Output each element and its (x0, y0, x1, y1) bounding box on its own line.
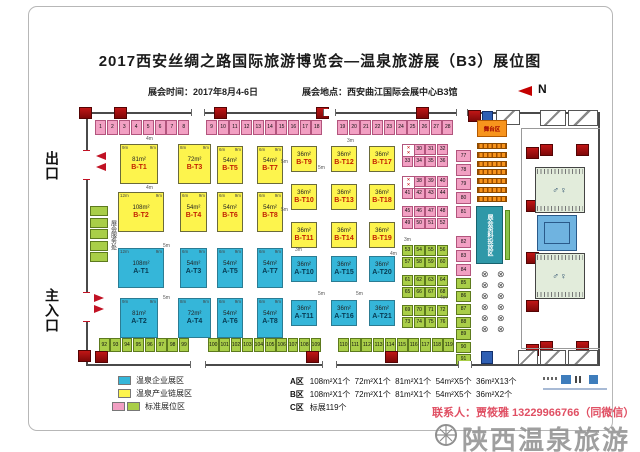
aisle-dimension-label: 5m (281, 160, 288, 165)
standard-booth-79: 79 (456, 178, 471, 190)
standard-booth-72: 72 (437, 305, 448, 316)
blurred-underline (543, 388, 607, 390)
standard-booth-96: 96 (145, 338, 156, 352)
booth-name: A-T16 (334, 313, 353, 320)
service-desk-cell (90, 218, 108, 228)
contact-info: 联系人：贾筱雅 13229966766（同微信） (432, 404, 634, 420)
booth-name: B-T18 (372, 197, 391, 204)
bottom-door (458, 361, 472, 368)
standard-booth-116: 116 (408, 338, 419, 352)
booth-B-T10: 36m²B-T10 (291, 184, 317, 210)
booth-area: 36m² (297, 152, 311, 158)
booth-name: A-T20 (372, 269, 391, 276)
stair-room (537, 215, 577, 251)
pillar (526, 300, 539, 312)
pillar (576, 144, 589, 156)
round-table-icon: ⊗ (481, 303, 489, 312)
standard-booth-111: 111 (350, 338, 361, 352)
round-table-icon: ⊗ (481, 314, 489, 323)
standard-booth-83: 83 (456, 250, 471, 262)
zone-c-label: C区 (290, 403, 304, 412)
blurred-blue-square (561, 375, 571, 384)
zone-a-stats: A区108m²X1个 72m²X1个 81m²X1个 54m²X5个 36m²X… (290, 376, 517, 387)
aisle-dimension-label: 5m (163, 244, 170, 249)
pillar (79, 107, 92, 119)
booth-depth-dim: 9m (150, 300, 156, 305)
standard-booth-98: 98 (167, 338, 178, 352)
standard-booth-53: 53 (402, 245, 413, 256)
standard-booth-57: 57 (402, 257, 413, 268)
booth-B-T1: 9m9m81m²B-T1 (120, 144, 158, 184)
blurred-blue-square (589, 375, 598, 384)
booth-depth-dim: 9m (203, 146, 209, 151)
standard-booth-13: 13 (253, 120, 264, 135)
aisle-dimension-label: 4m (440, 296, 447, 301)
standard-booth-61: 61 (402, 275, 413, 286)
booth-A-T8: 6m9m54m²A-T8 (257, 298, 283, 338)
booth-depth-dim: 9m (150, 146, 156, 151)
booth-name: A-T3 (186, 268, 202, 275)
legend-label: 标准展位区 (145, 401, 185, 412)
standard-booth-25: 25 (407, 120, 418, 135)
booth-B-T6: 6m9m54m²B-T6 (217, 192, 243, 232)
booth-area: 36m² (337, 306, 351, 312)
booth-B-T9: 36m²B-T9 (291, 146, 317, 172)
entrance-arrow-icon (94, 294, 104, 302)
side-room (568, 350, 598, 365)
stall-hatch (537, 255, 583, 260)
legend-item-hotspring-industry: 温泉产业链展区 (118, 388, 192, 399)
green-strip (505, 210, 510, 260)
booth-name: A-T7 (262, 268, 278, 275)
booth-area: 36m² (375, 152, 389, 158)
standard-booth-39: 39 (425, 176, 436, 187)
booth-name: B-T17 (372, 159, 391, 166)
standard-booth-19: 19 (337, 120, 348, 135)
booth-area: 54m² (223, 205, 237, 211)
entrance-arrow-icon (94, 305, 104, 313)
standard-booth-114: 114 (385, 338, 396, 352)
standard-booth-26: 26 (419, 120, 430, 135)
standard-booth-85: 85 (456, 278, 471, 289)
standard-booth-93: 93 (110, 338, 121, 352)
standard-booth-28: 28 (442, 120, 453, 135)
standard-booth-9: 9 (206, 120, 217, 135)
standard-booth-14: 14 (265, 120, 276, 135)
standard-booth-6: 6 (155, 120, 166, 135)
booth-area: 54m² (223, 311, 237, 317)
aisle-dimension-label: 4m (390, 252, 397, 257)
booth-area: 36m² (375, 228, 389, 234)
booth-B-T12: 36m²B-T12 (331, 146, 357, 172)
pillar (416, 107, 429, 119)
booth-B-T3: 8m9m72m²B-T3 (178, 144, 211, 184)
booth-depth-dim: 9m (235, 194, 241, 199)
booth-A-T11: 36m²A-T11 (291, 300, 317, 326)
standard-booth-66: 66 (414, 287, 425, 298)
booth-width-dim: 12m (120, 194, 129, 199)
booth-area: 54m² (187, 205, 201, 211)
booth-depth-dim: 9m (235, 300, 241, 305)
standard-booth-31: 31 (425, 144, 436, 155)
standard-booth-54: 54 (414, 245, 425, 256)
standard-booth-77: 77 (456, 150, 471, 162)
booth-depth-dim: 9m (235, 250, 241, 255)
standard-booth-100: 100 (208, 338, 219, 352)
booth-name: B-T1 (131, 164, 147, 171)
round-table-icon: ⊗ (497, 292, 505, 301)
pillar (114, 107, 127, 119)
bottom-door (322, 361, 337, 368)
side-room (568, 110, 598, 126)
standard-booth-110: 110 (338, 338, 349, 352)
standard-booth-32: 32 (437, 144, 448, 155)
audience-seat-row (477, 178, 507, 184)
booth-area: 54m² (223, 158, 237, 164)
standard-booth-7: 7 (166, 120, 177, 135)
watermark-text: 陕西温泉旅游 (462, 420, 630, 452)
aisle-dimension-label: 3m (404, 238, 411, 243)
standard-booth-44: 44 (437, 188, 448, 199)
booth-width-dim: 6m (259, 194, 265, 199)
standard-booth-11: 11 (229, 120, 240, 135)
standard-booth-73: 73 (402, 317, 413, 328)
booth-name: A-T1 (133, 268, 149, 275)
zone-b-label: B区 (290, 390, 304, 399)
booth-width-dim: 6m (182, 194, 188, 199)
booth-area: 108m² (132, 205, 149, 211)
standard-booth-41: 41 (402, 188, 413, 199)
standard-booth-4: 4 (131, 120, 142, 135)
booth-name: A-T6 (222, 318, 238, 325)
legend-item-standard-booth: 标准展位区 (112, 401, 185, 412)
standard-booth-109: 109 (311, 338, 322, 352)
booth-name: A-T4 (187, 318, 203, 325)
aisle-dimension-label: 5m (318, 292, 325, 297)
info-material-zone-label: 展会资料投放区 (477, 207, 502, 263)
booth-area: 54m² (223, 261, 237, 267)
screenshot-root: 2017西安丝绸之路国际旅游博览会—温泉旅游展（B3）展位图 展会时间：2017… (0, 0, 640, 452)
standard-booth-30: 30 (414, 144, 425, 155)
booth-name: B-T12 (334, 159, 353, 166)
booth-area: 36m² (375, 262, 389, 268)
zone-a-label: A区 (290, 377, 304, 386)
booth-width-dim: 8m (180, 146, 186, 151)
booth-name: B-T2 (133, 212, 149, 219)
watermark-logo-icon (434, 423, 458, 447)
standard-booth-49: 49 (402, 218, 413, 229)
booth-width-dim: 6m (259, 250, 265, 255)
booth-A-T4: 8m9m72m²A-T4 (178, 298, 211, 338)
restroom-block: ♂♀ (535, 253, 585, 299)
booth-width-dim: 6m (219, 148, 225, 153)
standard-booth-23: 23 (384, 120, 395, 135)
booth-A-T2: 9m9m81m²A-T2 (120, 298, 158, 338)
booth-B-T14: 36m²B-T14 (331, 222, 357, 248)
booth-B-T11: 36m²B-T11 (291, 222, 317, 248)
utility-box (481, 351, 493, 364)
standard-booth-88: 88 (456, 317, 471, 328)
corridor-wall (521, 128, 522, 349)
zone-b-stats: B区108m²X1个 72m²X1个 81m²X1个 54m²X5个 36m²X… (290, 389, 512, 400)
booth-name: B-T19 (372, 235, 391, 242)
standard-booth-1: 1 (95, 120, 106, 135)
booth-area: 108m² (132, 261, 149, 267)
booth-area: 54m² (263, 261, 277, 267)
booth-name: A-T11 (294, 313, 313, 320)
standard-booth-80: 80 (456, 192, 471, 204)
booth-area: 54m² (263, 205, 277, 211)
booth-area: 54m² (263, 311, 277, 317)
booth-width-dim: 9m (122, 300, 128, 305)
booth-name: B-T4 (186, 212, 202, 219)
top-door (191, 109, 205, 116)
standard-booth-3: 3 (119, 120, 130, 135)
booth-area: 54m² (187, 261, 201, 267)
green-swatch-icon (127, 402, 140, 411)
standard-booth-33: 33 (402, 156, 413, 167)
booth-A-T15: 36m²A-T15 (331, 256, 357, 282)
standard-booth-27: 27 (431, 120, 442, 135)
booth-name: B-T14 (334, 235, 353, 242)
aisle-dimension-label: 5m (281, 208, 288, 213)
booth-area: 36m² (337, 228, 351, 234)
standard-booth-52: 52 (437, 218, 448, 229)
info-material-zone: 展会资料投放区 (476, 206, 503, 264)
standard-booth-34: 34 (414, 156, 425, 167)
standard-booth-84: 84 (456, 264, 471, 276)
standard-booth-16: 16 (288, 120, 299, 135)
aisle-dimension-label: 5m (318, 166, 325, 171)
booth-area: 36m² (337, 152, 351, 158)
booth-B-T5: 6m9m54m²B-T5 (217, 146, 243, 184)
standard-booth-43: 43 (425, 188, 436, 199)
service-desk-label: 展会服务处 (109, 206, 117, 264)
round-table-icon: ⊗ (497, 314, 505, 323)
booth-A-T3: 6m9m54m²A-T3 (180, 248, 207, 288)
booth-width-dim: 9m (122, 146, 128, 151)
side-room (518, 350, 538, 365)
standard-booth-95: 95 (133, 338, 144, 352)
blue-swatch-icon (118, 376, 131, 385)
yellow-swatch-icon (118, 389, 131, 398)
blocked-cell-icon: ✕ ✕ (402, 176, 415, 189)
zone-c-stats: C区标展119个 (290, 402, 347, 413)
standard-booth-86: 86 (456, 291, 471, 302)
booth-area: 81m² (132, 311, 146, 317)
corridor-wall (521, 128, 600, 129)
corridor-wall (521, 348, 600, 349)
blurred-glyphs (575, 376, 583, 383)
booth-area: 36m² (297, 262, 311, 268)
round-table-icon: ⊗ (481, 270, 489, 279)
standard-booth-17: 17 (300, 120, 311, 135)
round-table-icon: ⊗ (497, 325, 505, 334)
booth-width-dim: 6m (219, 250, 225, 255)
standard-booth-107: 107 (288, 338, 299, 352)
booth-name: B-T9 (296, 159, 312, 166)
standard-booth-63: 63 (425, 275, 436, 286)
restroom-icon: ♂♀ (536, 185, 584, 195)
booth-name: B-T13 (334, 197, 353, 204)
booth-B-T13: 36m²B-T13 (331, 184, 357, 210)
audience-seat-row (477, 169, 507, 175)
booth-depth-dim: 9m (275, 194, 281, 199)
booth-depth-dim: 9m (203, 300, 209, 305)
booth-A-T5: 6m9m54m²A-T5 (217, 248, 243, 288)
standard-booth-71: 71 (425, 305, 436, 316)
booth-area: 36m² (337, 262, 351, 268)
standard-booth-64: 64 (437, 275, 448, 286)
booth-depth-dim: 9m (235, 148, 241, 153)
booth-area: 72m² (188, 157, 202, 163)
standard-booth-56: 56 (437, 245, 448, 256)
booth-A-T1: 12m9m108m²A-T1 (118, 248, 164, 288)
standard-booth-51: 51 (425, 218, 436, 229)
bottom-door (190, 361, 206, 368)
round-table-icon: ⊗ (497, 303, 505, 312)
booth-width-dim: 6m (219, 300, 225, 305)
standard-booth-92: 92 (99, 338, 110, 352)
booth-width-dim: 6m (219, 194, 225, 199)
round-table-icon: ⊗ (481, 292, 489, 301)
standard-booth-58: 58 (414, 257, 425, 268)
standard-booth-65: 65 (402, 287, 413, 298)
booth-name: B-T3 (187, 164, 203, 171)
booth-width-dim: 6m (259, 300, 265, 305)
standard-booth-15: 15 (276, 120, 287, 135)
booth-A-T7: 6m9m54m²A-T7 (257, 248, 283, 288)
pillar (214, 107, 227, 119)
round-table-icon: ⊗ (497, 270, 505, 279)
standard-booth-112: 112 (361, 338, 372, 352)
restroom-icon: ♂♀ (536, 271, 584, 281)
pink-swatch-icon (112, 402, 125, 411)
standard-booth-103: 103 (242, 338, 253, 352)
standard-booth-115: 115 (397, 338, 408, 352)
booth-name: B-T11 (294, 235, 313, 242)
booth-A-T21: 36m²A-T21 (369, 300, 395, 326)
standard-booth-42: 42 (414, 188, 425, 199)
exit-arrow-icon (96, 163, 106, 171)
booth-B-T18: 36m²B-T18 (369, 184, 395, 210)
booth-width-dim: 6m (182, 250, 188, 255)
standard-booth-67: 67 (425, 287, 436, 298)
booth-name: B-T8 (262, 212, 278, 219)
restroom-block: ♂♀ (535, 167, 585, 213)
standard-booth-45: 45 (402, 206, 413, 217)
pillar (306, 351, 319, 363)
booth-depth-dim: 9m (156, 250, 162, 255)
standard-booth-2: 2 (107, 120, 118, 135)
main-entrance-label: 主入口 (44, 282, 60, 338)
round-table-icon: ⊗ (481, 281, 489, 290)
booth-area: 54m² (263, 158, 277, 164)
booth-depth-dim: 9m (275, 250, 281, 255)
booth-A-T16: 36m²A-T16 (331, 300, 357, 326)
booth-A-T6: 6m9m54m²A-T6 (217, 298, 243, 338)
exit-arrow-icon (96, 152, 106, 160)
standard-booth-87: 87 (456, 304, 471, 315)
stage-area: 舞台区 (477, 120, 507, 137)
booth-B-T19: 36m²B-T19 (369, 222, 395, 248)
pillar (78, 350, 91, 362)
stage-label: 舞台区 (484, 125, 501, 133)
booth-area: 36m² (337, 190, 351, 196)
booth-B-T17: 36m²B-T17 (369, 146, 395, 172)
stall-hatch (537, 292, 583, 297)
booth-name: B-T10 (294, 197, 313, 204)
aisle-dimension-label: 3m (347, 139, 354, 144)
standard-booth-62: 62 (414, 275, 425, 286)
booth-depth-dim: 9m (199, 250, 205, 255)
top-door (456, 109, 468, 116)
service-desk-cell (90, 206, 108, 216)
booth-depth-dim: 9m (199, 194, 205, 199)
standard-booth-69: 69 (402, 305, 413, 316)
blocked-cell-icon: ✕ ✕ (402, 144, 415, 157)
booth-width-dim: 12m (120, 250, 129, 255)
legend-label: 温泉企业展区 (136, 375, 184, 386)
standard-booth-12: 12 (241, 120, 252, 135)
audience-seat-row (477, 196, 507, 202)
stall-hatch (537, 206, 583, 211)
booth-name: A-T8 (262, 318, 278, 325)
standard-booth-97: 97 (156, 338, 167, 352)
booth-area: 36m² (297, 190, 311, 196)
standard-booth-36: 36 (437, 156, 448, 167)
standard-booth-50: 50 (414, 218, 425, 229)
standard-booth-104: 104 (254, 338, 265, 352)
left-door (83, 292, 90, 322)
zone-c-detail: 标展119个 (310, 403, 347, 412)
service-desk-cell (90, 252, 108, 262)
booth-area: 81m² (132, 157, 146, 163)
booth-name: A-T10 (294, 269, 313, 276)
standard-booth-35: 35 (425, 156, 436, 167)
standard-booth-24: 24 (396, 120, 407, 135)
booth-area: 36m² (375, 306, 389, 312)
zone-a-detail: 108m²X1个 72m²X1个 81m²X1个 54m²X5个 36m²X13… (310, 377, 517, 386)
standard-booth-59: 59 (425, 257, 436, 268)
booth-name: B-T5 (222, 165, 238, 172)
standard-booth-76: 76 (437, 317, 448, 328)
standard-booth-119: 119 (443, 338, 454, 352)
booth-depth-dim: 9m (275, 300, 281, 305)
exit-label: 出口 (44, 146, 60, 186)
legend-item-hotspring-enterprise: 温泉企业展区 (118, 375, 184, 386)
standard-booth-99: 99 (179, 338, 190, 352)
booth-area: 36m² (297, 306, 311, 312)
side-room (540, 350, 566, 365)
booth-B-T7: 6m9m54m²B-T7 (257, 146, 283, 184)
standard-booth-101: 101 (219, 338, 230, 352)
booth-area: 36m² (375, 190, 389, 196)
booth-B-T4: 6m9m54m²B-T4 (180, 192, 207, 232)
standard-booth-55: 55 (425, 245, 436, 256)
standard-booth-70: 70 (414, 305, 425, 316)
aisle-dimension-label: 4m (146, 137, 153, 142)
side-room (540, 110, 566, 126)
booth-width-dim: 8m (180, 300, 186, 305)
booth-B-T8: 6m9m54m²B-T8 (257, 192, 283, 232)
standard-booth-74: 74 (414, 317, 425, 328)
standard-booth-5: 5 (143, 120, 154, 135)
standard-booth-89: 89 (456, 329, 471, 340)
booth-depth-dim: 9m (156, 194, 162, 199)
booth-name: A-T2 (131, 318, 147, 325)
booth-name: A-T15 (334, 269, 353, 276)
